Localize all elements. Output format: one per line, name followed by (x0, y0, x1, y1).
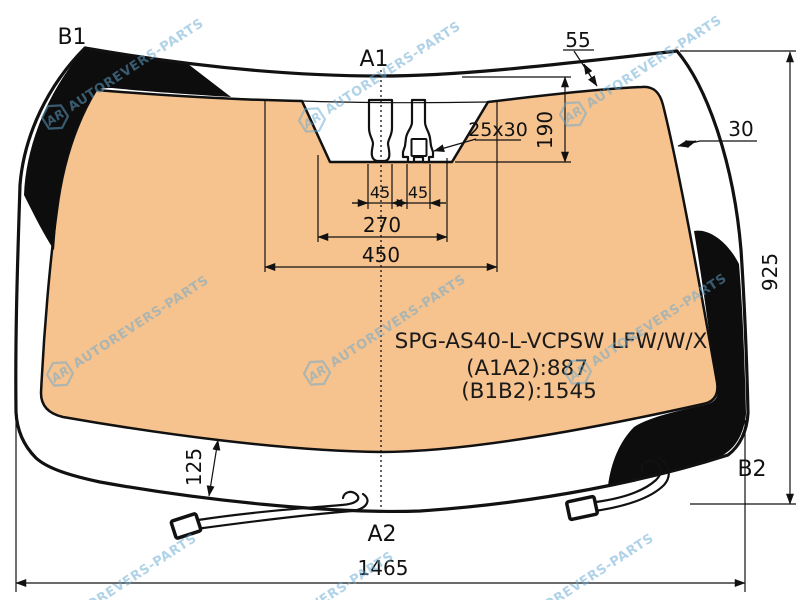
dim-label-sensor-height: 190 (533, 111, 557, 149)
dim-label-bottom-gap: 125 (182, 448, 206, 486)
svg-text:AUTOREVERS-PARTS: AUTOREVERS-PARTS (516, 531, 657, 600)
dim-label-top-gap: 55 (565, 28, 590, 52)
svg-text:AUTOREVERS-PARTS: AUTOREVERS-PARTS (59, 531, 200, 600)
corner-label-a2: A2 (367, 522, 396, 547)
watermark: AR AUTOREVERS-PARTS (228, 544, 399, 600)
watermark: AR AUTOREVERS-PARTS (488, 526, 659, 600)
part-number: SPG-AS40-L-VCPSW LFW/W/X (395, 329, 708, 354)
corner-label-b2: B2 (737, 457, 766, 482)
dim-label-prong-left: 45 (370, 183, 390, 202)
dim-label-prong-right: 45 (408, 183, 428, 202)
dim-label-inner-width: 270 (363, 213, 401, 237)
dim-label-height-right: 925 (758, 253, 782, 291)
camera-window (412, 139, 427, 156)
diagram-canvas: B1 A1 A2 B2 55 30 25x30 45 45 270 450 14… (0, 0, 800, 600)
dim-label-outer-width: 450 (362, 243, 400, 267)
dim-label-side-gap: 30 (728, 117, 753, 141)
corner-label-b1: B1 (57, 25, 86, 50)
dim-label-camera-window: 25x30 (468, 119, 528, 141)
windshield-diagram: B1 A1 A2 B2 55 30 25x30 45 45 270 450 14… (0, 0, 800, 600)
svg-text:AUTOREVERS-PARTS: AUTOREVERS-PARTS (256, 549, 397, 600)
connector-right (566, 496, 597, 519)
